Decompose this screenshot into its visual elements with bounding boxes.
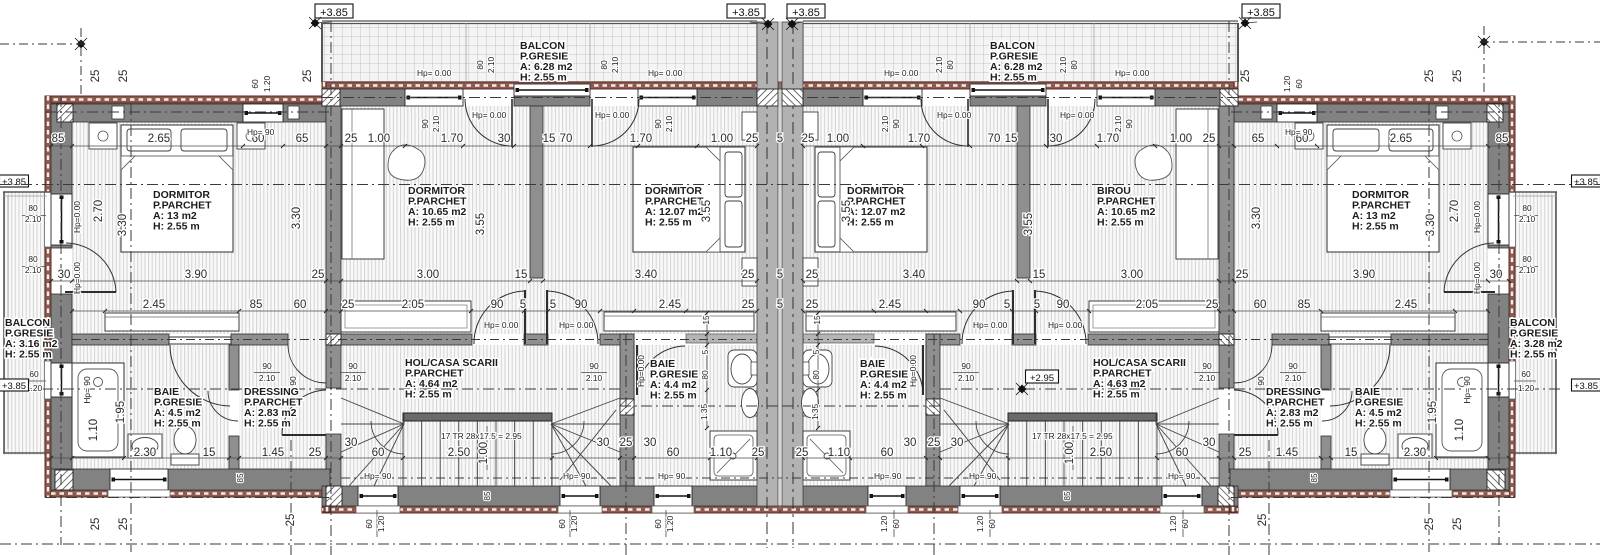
svg-text:2.45: 2.45 xyxy=(659,299,681,311)
svg-text:25: 25 xyxy=(302,70,314,83)
svg-text:1.00: 1.00 xyxy=(827,133,849,145)
svg-text:Hp= 0.00: Hp= 0.00 xyxy=(937,110,972,120)
svg-text:Hp= 90: Hp= 90 xyxy=(1462,376,1472,404)
svg-text:2.10: 2.10 xyxy=(1199,373,1216,383)
svg-text:25: 25 xyxy=(90,70,102,83)
svg-text:85: 85 xyxy=(52,133,65,145)
svg-text:1.35: 1.35 xyxy=(810,404,820,421)
svg-text:25: 25 xyxy=(345,133,358,145)
svg-text:+3.85: +3.85 xyxy=(1574,381,1598,392)
svg-text:30: 30 xyxy=(1050,133,1063,145)
svg-text:Hp= 0.00: Hp= 0.00 xyxy=(484,320,519,330)
svg-text:Hp= 90: Hp= 90 xyxy=(1285,127,1313,137)
svg-text:15: 15 xyxy=(701,315,711,325)
svg-text:80: 80 xyxy=(1522,203,1532,213)
svg-text:1.20: 1.20 xyxy=(879,516,889,533)
svg-text:+2.95: +2.95 xyxy=(1030,373,1054,384)
svg-text:80: 80 xyxy=(475,60,485,70)
svg-text:5: 5 xyxy=(700,349,710,354)
svg-text:2.05: 2.05 xyxy=(1136,299,1158,311)
svg-text:17 TR 28x17.5 = 2.95: 17 TR 28x17.5 = 2.95 xyxy=(1032,431,1113,441)
svg-text:85: 85 xyxy=(250,299,263,311)
svg-text:90: 90 xyxy=(961,361,971,371)
svg-text:60: 60 xyxy=(372,447,385,459)
svg-text:2.10: 2.10 xyxy=(1285,373,1302,383)
svg-text:Hp= 0.00: Hp= 0.00 xyxy=(595,110,630,120)
svg-text:2.10: 2.10 xyxy=(1058,57,1068,74)
svg-text:2.10: 2.10 xyxy=(610,57,620,74)
svg-text:H: 2.55 m: H: 2.55 m xyxy=(5,349,52,361)
svg-text:H: 2.55 m: H: 2.55 m xyxy=(1266,418,1313,430)
svg-text:2.65: 2.65 xyxy=(1390,133,1412,145)
svg-text:1.10: 1.10 xyxy=(88,419,100,441)
svg-text:H: 2.55 m: H: 2.55 m xyxy=(650,390,697,402)
svg-text:85: 85 xyxy=(1298,299,1311,311)
svg-text:H: 2.55 m: H: 2.55 m xyxy=(1355,418,1402,430)
svg-text:90: 90 xyxy=(1256,376,1266,386)
svg-text:3.90: 3.90 xyxy=(185,269,207,281)
svg-text:85: 85 xyxy=(235,473,245,483)
svg-text:Hp= 0.00: Hp= 0.00 xyxy=(648,68,683,78)
svg-text:1.10: 1.10 xyxy=(1454,419,1466,441)
svg-text:90: 90 xyxy=(348,361,358,371)
svg-text:1.45: 1.45 xyxy=(1276,447,1298,459)
svg-text:25: 25 xyxy=(746,133,759,145)
svg-text:2.10: 2.10 xyxy=(345,373,362,383)
svg-text:1.10: 1.10 xyxy=(828,447,850,459)
svg-text:25: 25 xyxy=(796,447,809,459)
svg-text:90: 90 xyxy=(1124,119,1134,129)
svg-text:1.10: 1.10 xyxy=(710,447,732,459)
svg-text:3.30: 3.30 xyxy=(291,207,303,229)
svg-text:1.20: 1.20 xyxy=(1168,516,1178,533)
svg-text:25: 25 xyxy=(1257,514,1269,527)
svg-text:Hp= 0.00: Hp= 0.00 xyxy=(1048,320,1083,330)
svg-text:2.50: 2.50 xyxy=(1090,447,1112,459)
svg-text:80: 80 xyxy=(700,370,710,380)
svg-text:2.10: 2.10 xyxy=(1519,214,1536,224)
svg-text:Hp= 0.00: Hp= 0.00 xyxy=(472,110,507,120)
svg-text:3.55: 3.55 xyxy=(841,200,853,222)
svg-text:60: 60 xyxy=(1176,447,1189,459)
svg-text:60: 60 xyxy=(29,369,39,379)
svg-text:2.05: 2.05 xyxy=(402,299,424,311)
svg-text:90: 90 xyxy=(653,119,663,129)
svg-text:Hp= 0.00: Hp= 0.00 xyxy=(1115,68,1150,78)
svg-text:Hp= 0.00: Hp= 0.00 xyxy=(559,320,594,330)
svg-text:Hp= 0.00: Hp= 0.00 xyxy=(973,320,1008,330)
svg-text:25: 25 xyxy=(1424,518,1436,531)
svg-text:H: 2.55 m: H: 2.55 m xyxy=(1510,349,1557,361)
svg-text:80: 80 xyxy=(599,60,609,70)
svg-text:Hp= 90: Hp= 90 xyxy=(874,471,902,481)
svg-text:1.70: 1.70 xyxy=(908,133,930,145)
svg-text:90: 90 xyxy=(288,376,298,386)
svg-text:1.00: 1.00 xyxy=(1064,442,1076,464)
svg-text:80: 80 xyxy=(945,60,955,70)
svg-text:1.70: 1.70 xyxy=(630,133,652,145)
svg-text:60: 60 xyxy=(1180,519,1190,529)
svg-text:30: 30 xyxy=(58,269,71,281)
svg-text:65: 65 xyxy=(1252,133,1265,145)
svg-text:Hp=0.00: Hp=0.00 xyxy=(72,201,82,233)
svg-text:3.90: 3.90 xyxy=(1353,269,1375,281)
svg-text:Hp=0.00: Hp=0.00 xyxy=(908,355,918,387)
svg-text:85: 85 xyxy=(482,491,492,501)
svg-text:25: 25 xyxy=(806,269,819,281)
svg-text:25: 25 xyxy=(1424,70,1436,83)
svg-text:2.10: 2.10 xyxy=(25,214,42,224)
svg-text:H: 2.55 m: H: 2.55 m xyxy=(1093,389,1140,401)
svg-text:H: 2.55 m: H: 2.55 m xyxy=(244,418,291,430)
svg-text:1.00: 1.00 xyxy=(711,133,733,145)
svg-text:70: 70 xyxy=(560,133,573,145)
svg-text:H: 2.55 m: H: 2.55 m xyxy=(154,418,201,430)
svg-text:2.10: 2.10 xyxy=(958,373,975,383)
svg-text:Hp=0.00: Hp=0.00 xyxy=(1472,262,1482,294)
svg-text:60: 60 xyxy=(987,519,997,529)
svg-text:H: 2.55 m: H: 2.55 m xyxy=(408,217,455,229)
svg-text:5: 5 xyxy=(550,299,556,311)
svg-text:30: 30 xyxy=(1490,269,1503,281)
svg-text:2.10: 2.10 xyxy=(25,265,42,275)
svg-text:+3.85: +3.85 xyxy=(1574,177,1598,188)
svg-text:30: 30 xyxy=(951,437,964,449)
svg-text:2.70: 2.70 xyxy=(93,200,105,222)
svg-text:2.10: 2.10 xyxy=(586,373,603,383)
svg-text:25: 25 xyxy=(1203,133,1216,145)
svg-text:2.10: 2.10 xyxy=(431,116,441,133)
svg-text:Hp= 0.00: Hp= 0.00 xyxy=(417,68,452,78)
svg-text:Hp= 90: Hp= 90 xyxy=(82,376,92,404)
svg-text:1.70: 1.70 xyxy=(1097,133,1119,145)
svg-text:60: 60 xyxy=(881,447,894,459)
svg-text:90: 90 xyxy=(589,361,599,371)
svg-text:90: 90 xyxy=(1057,299,1070,311)
svg-text:3.30: 3.30 xyxy=(1251,207,1263,229)
svg-text:25: 25 xyxy=(752,447,765,459)
svg-text:+3.85: +3.85 xyxy=(732,7,760,19)
svg-text:Hp=0.00: Hp=0.00 xyxy=(636,355,646,387)
svg-text:60: 60 xyxy=(1294,79,1304,89)
svg-text:5: 5 xyxy=(811,349,821,354)
svg-text:60: 60 xyxy=(667,447,680,459)
svg-text:85: 85 xyxy=(1309,473,1319,483)
svg-text:80: 80 xyxy=(811,370,821,380)
svg-text:25: 25 xyxy=(342,299,355,311)
svg-text:1.95: 1.95 xyxy=(115,401,127,423)
svg-text:90: 90 xyxy=(1288,361,1298,371)
svg-text:15: 15 xyxy=(1345,447,1358,459)
svg-text:15: 15 xyxy=(203,447,216,459)
svg-text:30: 30 xyxy=(644,437,657,449)
svg-text:H: 2.55 m: H: 2.55 m xyxy=(1352,221,1399,233)
svg-text:Hp= 90: Hp= 90 xyxy=(969,471,997,481)
svg-text:H: 2.55 m: H: 2.55 m xyxy=(847,217,894,229)
svg-text:3.55: 3.55 xyxy=(1023,213,1035,235)
svg-text:H: 2.55 m: H: 2.55 m xyxy=(645,217,692,229)
svg-text:1.20: 1.20 xyxy=(665,516,675,533)
svg-text:+3.85: +3.85 xyxy=(2,177,26,188)
svg-text:Hp= 90: Hp= 90 xyxy=(563,471,591,481)
svg-text:15: 15 xyxy=(812,315,822,325)
svg-text:Hp= 90: Hp= 90 xyxy=(247,127,275,137)
svg-text:Hp= 90: Hp= 90 xyxy=(1168,471,1196,481)
svg-text:Hp= 90: Hp= 90 xyxy=(658,471,686,481)
svg-text:+3.85: +3.85 xyxy=(792,7,820,19)
svg-text:1.35: 1.35 xyxy=(699,404,709,421)
svg-text:1.20: 1.20 xyxy=(1518,383,1535,393)
svg-text:3.55: 3.55 xyxy=(701,200,713,222)
svg-text:90: 90 xyxy=(891,119,901,129)
svg-text:90: 90 xyxy=(491,299,504,311)
svg-text:1.95: 1.95 xyxy=(1427,401,1439,423)
svg-text:2.10: 2.10 xyxy=(486,57,496,74)
svg-text:25: 25 xyxy=(742,299,755,311)
svg-text:5: 5 xyxy=(1004,299,1010,311)
svg-text:80: 80 xyxy=(28,203,38,213)
svg-text:Hp=0.00: Hp=0.00 xyxy=(1472,201,1482,233)
svg-text:60: 60 xyxy=(891,519,901,529)
svg-text:30: 30 xyxy=(498,133,511,145)
svg-text:3.40: 3.40 xyxy=(635,269,657,281)
svg-text:5: 5 xyxy=(1034,299,1040,311)
svg-text:Hp= 0.00: Hp= 0.00 xyxy=(884,68,919,78)
svg-text:15: 15 xyxy=(515,269,528,281)
svg-text:90: 90 xyxy=(262,361,272,371)
svg-text:Hp= 90: Hp= 90 xyxy=(364,471,392,481)
svg-text:25: 25 xyxy=(285,514,297,527)
svg-text:2.45: 2.45 xyxy=(1395,299,1417,311)
svg-text:2.45: 2.45 xyxy=(879,299,901,311)
svg-text:2.10: 2.10 xyxy=(1113,116,1123,133)
svg-text:2.10: 2.10 xyxy=(880,116,890,133)
svg-text:1.00: 1.00 xyxy=(368,133,390,145)
svg-text:80: 80 xyxy=(1069,60,1079,70)
svg-text:60: 60 xyxy=(250,79,260,89)
svg-text:2.45: 2.45 xyxy=(143,299,165,311)
svg-text:25: 25 xyxy=(1240,70,1252,83)
svg-text:90: 90 xyxy=(973,299,986,311)
svg-text:30: 30 xyxy=(904,437,917,449)
svg-text:2.30: 2.30 xyxy=(134,447,156,459)
svg-text:Hp= 0.00: Hp= 0.00 xyxy=(1060,110,1095,120)
svg-text:1.20: 1.20 xyxy=(569,516,579,533)
svg-text:30: 30 xyxy=(597,437,610,449)
svg-text:+3.85: +3.85 xyxy=(320,7,348,19)
svg-text:90: 90 xyxy=(575,299,588,311)
svg-text:15: 15 xyxy=(1033,269,1046,281)
svg-text:1.00: 1.00 xyxy=(478,442,490,464)
svg-text:30: 30 xyxy=(345,437,358,449)
svg-text:85: 85 xyxy=(1496,133,1509,145)
svg-text:25: 25 xyxy=(312,269,325,281)
svg-text:15: 15 xyxy=(543,133,556,145)
svg-text:5: 5 xyxy=(520,299,526,311)
svg-text:25: 25 xyxy=(742,269,755,281)
svg-text:15: 15 xyxy=(1005,133,1018,145)
svg-text:60: 60 xyxy=(1521,369,1531,379)
svg-text:25: 25 xyxy=(90,518,102,531)
svg-text:H: 2.55 m: H: 2.55 m xyxy=(990,72,1037,84)
svg-text:17 TR 28x17.5 = 2.95: 17 TR 28x17.5 = 2.95 xyxy=(441,431,522,441)
svg-text:3.30: 3.30 xyxy=(1425,214,1437,236)
svg-text:2.10: 2.10 xyxy=(934,57,944,74)
svg-text:25: 25 xyxy=(802,133,815,145)
svg-text:25: 25 xyxy=(928,437,941,449)
svg-text:+3.85: +3.85 xyxy=(2,381,26,392)
svg-text:2.10: 2.10 xyxy=(1519,265,1536,275)
svg-text:25: 25 xyxy=(806,299,819,311)
svg-text:2.10: 2.10 xyxy=(259,373,276,383)
svg-text:60: 60 xyxy=(653,519,663,529)
svg-text:1.20: 1.20 xyxy=(376,516,386,533)
svg-text:25: 25 xyxy=(1236,269,1249,281)
svg-text:25: 25 xyxy=(620,437,633,449)
svg-text:1.70: 1.70 xyxy=(441,133,463,145)
svg-text:3.55: 3.55 xyxy=(475,213,487,235)
svg-text:25: 25 xyxy=(1206,299,1219,311)
svg-text:H: 2.55 m: H: 2.55 m xyxy=(153,221,200,233)
svg-text:90: 90 xyxy=(1202,361,1212,371)
svg-text:2.30: 2.30 xyxy=(1404,447,1426,459)
svg-text:25: 25 xyxy=(309,447,322,459)
svg-text:90: 90 xyxy=(420,119,430,129)
svg-text:3.30: 3.30 xyxy=(117,214,129,236)
svg-text:+3.85: +3.85 xyxy=(1247,7,1275,19)
svg-text:1.00: 1.00 xyxy=(1170,133,1192,145)
svg-text:1.20: 1.20 xyxy=(262,76,272,93)
svg-text:60: 60 xyxy=(364,519,374,529)
svg-text:1.20: 1.20 xyxy=(975,516,985,533)
svg-text:Hp=0.00: Hp=0.00 xyxy=(72,262,82,294)
svg-text:70: 70 xyxy=(988,133,1001,145)
svg-text:H: 2.55 m: H: 2.55 m xyxy=(1097,217,1144,229)
svg-text:65: 65 xyxy=(296,133,309,145)
svg-text:H: 2.55 m: H: 2.55 m xyxy=(860,390,907,402)
svg-text:25: 25 xyxy=(1452,518,1464,531)
svg-text:80: 80 xyxy=(28,254,38,264)
svg-text:1.20: 1.20 xyxy=(1282,76,1292,93)
svg-text:80: 80 xyxy=(1522,254,1532,264)
svg-text:25: 25 xyxy=(1239,447,1252,459)
svg-text:1.45: 1.45 xyxy=(262,447,284,459)
svg-text:60: 60 xyxy=(294,299,307,311)
svg-text:30: 30 xyxy=(1203,437,1216,449)
svg-text:25: 25 xyxy=(1452,70,1464,83)
svg-text:85: 85 xyxy=(1062,491,1072,501)
svg-text:25: 25 xyxy=(118,518,130,531)
svg-text:2.10: 2.10 xyxy=(664,116,674,133)
svg-text:60: 60 xyxy=(557,519,567,529)
svg-text:H: 2.55 m: H: 2.55 m xyxy=(405,389,452,401)
svg-text:25: 25 xyxy=(118,70,130,83)
svg-text:H: 2.55 m: H: 2.55 m xyxy=(520,72,567,84)
svg-text:3.40: 3.40 xyxy=(903,269,925,281)
svg-text:3.00: 3.00 xyxy=(1121,269,1143,281)
svg-text:2.50: 2.50 xyxy=(448,447,470,459)
svg-text:2.70: 2.70 xyxy=(1449,200,1461,222)
svg-text:2.65: 2.65 xyxy=(148,133,170,145)
svg-text:3.00: 3.00 xyxy=(417,269,439,281)
svg-text:60: 60 xyxy=(1254,299,1267,311)
